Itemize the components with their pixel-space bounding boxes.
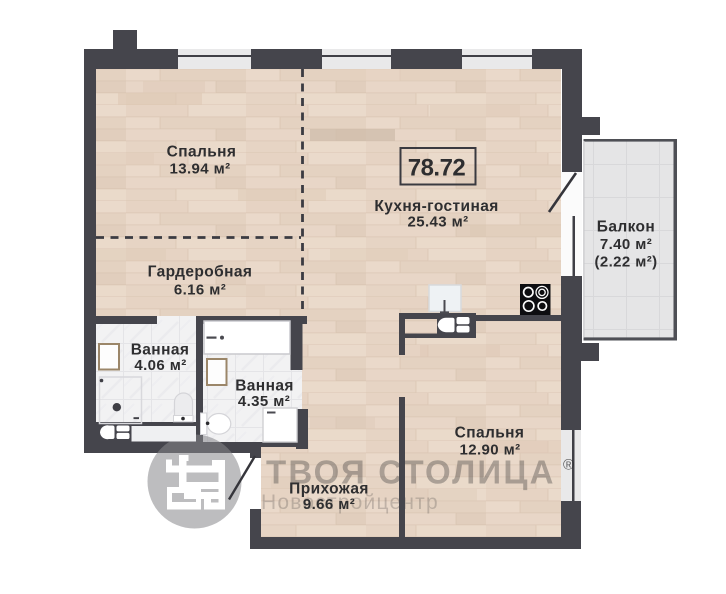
svg-text:6.16 м²: 6.16 м²: [174, 282, 226, 299]
svg-text:12.90 м²: 12.90 м²: [460, 442, 521, 459]
svg-text:4.06 м²: 4.06 м²: [134, 357, 186, 374]
svg-text:4.35 м²: 4.35 м²: [238, 393, 290, 410]
svg-text:(2.22 м²): (2.22 м²): [594, 254, 657, 271]
svg-text:Спальня: Спальня: [167, 144, 237, 161]
svg-text:Балкон: Балкон: [597, 219, 655, 236]
svg-text:9.66 м²: 9.66 м²: [303, 496, 355, 513]
svg-text:Прихожая: Прихожая: [289, 481, 369, 498]
svg-text:Гардеробная: Гардеробная: [148, 264, 253, 281]
svg-text:Спальня: Спальня: [455, 425, 525, 442]
svg-text:13.94 м²: 13.94 м²: [170, 161, 231, 178]
svg-text:7.40 м²: 7.40 м²: [600, 236, 652, 253]
svg-text:Ванная: Ванная: [235, 378, 294, 395]
svg-text:25.43 м²: 25.43 м²: [408, 214, 469, 231]
svg-text:®: ®: [563, 457, 574, 474]
svg-text:Ванная: Ванная: [131, 342, 190, 359]
svg-text:Кухня-гостиная: Кухня-гостиная: [374, 198, 498, 215]
svg-text:78.72: 78.72: [408, 155, 466, 182]
